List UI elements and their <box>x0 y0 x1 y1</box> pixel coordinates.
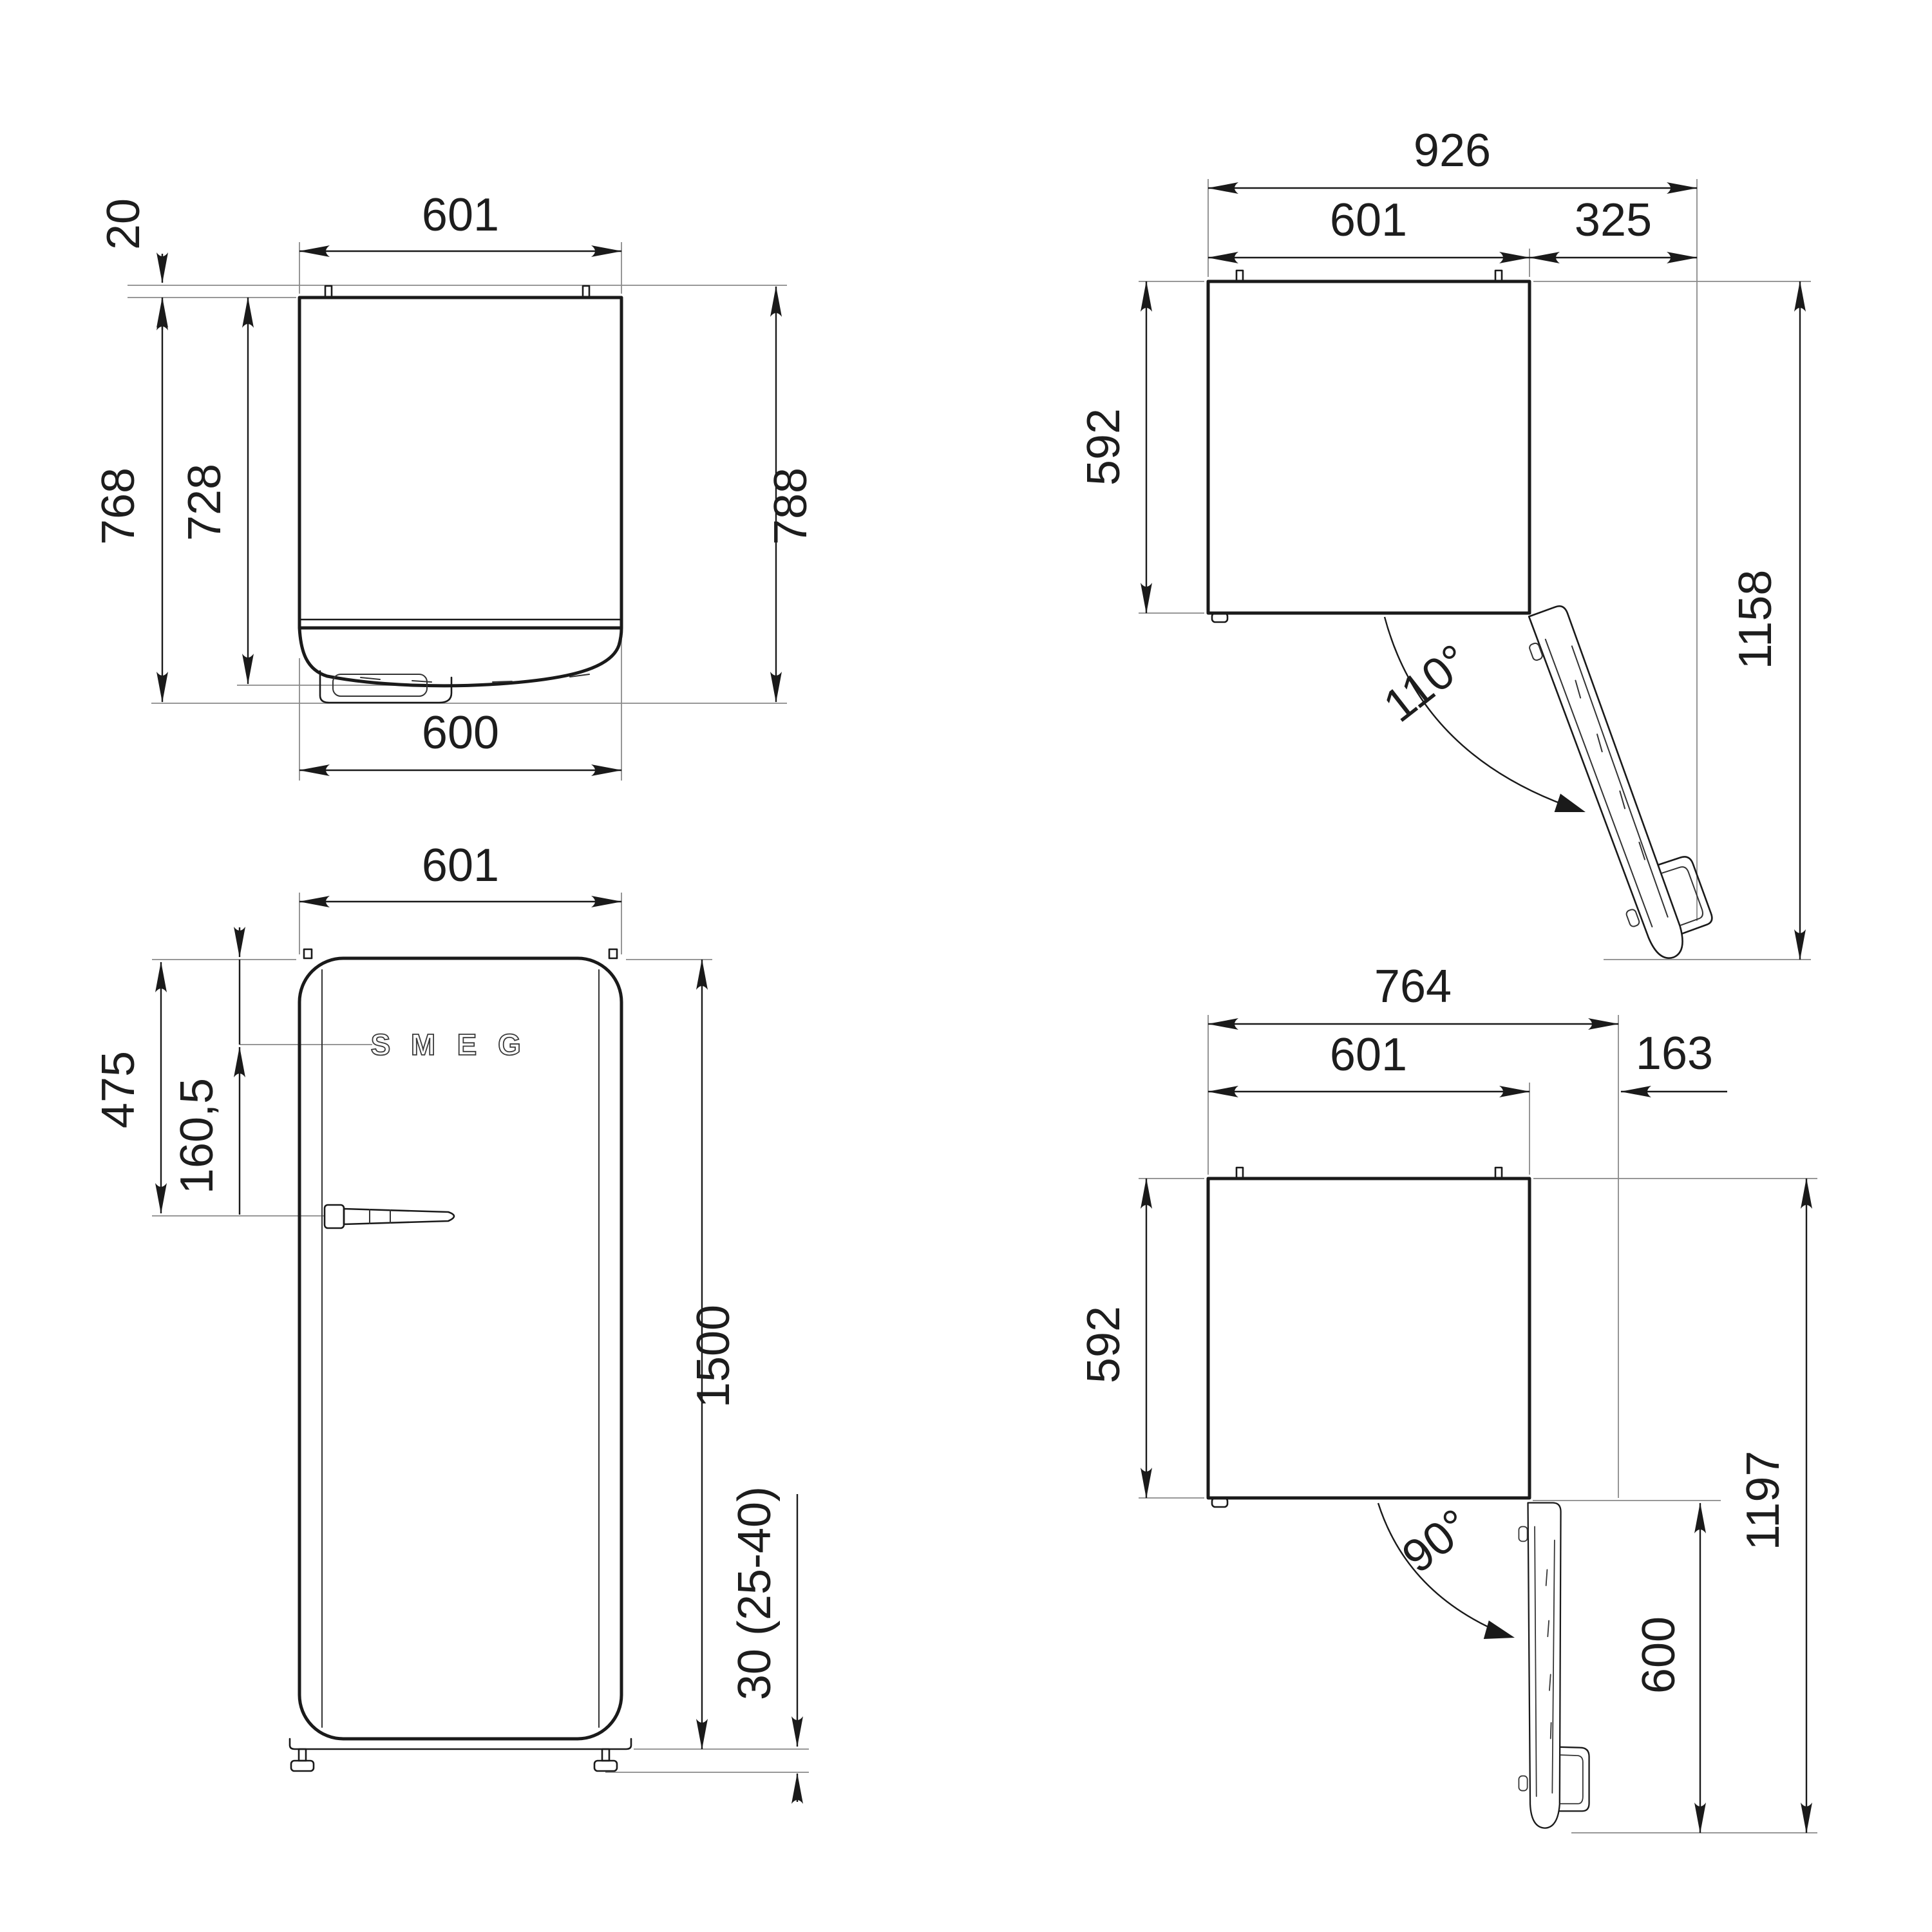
rear-spacer-pin-right <box>1495 1168 1502 1179</box>
dim-label-door-projection: 163 <box>1636 1028 1713 1079</box>
label-door-angle-110: 110° <box>1374 634 1479 732</box>
logo-letter-e: E <box>457 1028 478 1061</box>
dim-label-overall-depth: 1158 <box>1730 570 1781 670</box>
dim-label-overall-width: 764 <box>1374 961 1452 1012</box>
extension-lines <box>1139 179 1811 960</box>
dim-label-body-width: 601 <box>1330 194 1407 246</box>
dim-label-depth-overall: 788 <box>765 468 817 545</box>
dim-label-height: 1500 <box>688 1305 739 1408</box>
dim-label-top-to-logo: 160,5 <box>171 1078 223 1194</box>
cabinet-body-open-110 <box>1208 281 1529 613</box>
dimension-lines <box>1146 188 1800 960</box>
door-handle-front <box>325 1205 454 1228</box>
top-hinge-cap-left <box>304 949 312 958</box>
dim-label-width: 601 <box>422 840 499 891</box>
rear-spacer-pin-left <box>1236 270 1243 281</box>
rear-spacer-pin-left <box>1236 1168 1243 1179</box>
arc-arrowhead <box>1555 793 1586 812</box>
logo-letter-g: G <box>498 1028 522 1061</box>
dimension-drawing: 601 20 768 728 788 600 926 601 <box>0 0 1932 1932</box>
door-open-90 <box>1519 1503 1589 1828</box>
rear-spacer-pin-right <box>1495 270 1502 281</box>
rear-spacer-pin-left <box>325 286 332 298</box>
cabinet-body-open-90 <box>1208 1179 1529 1498</box>
view-top-open-110: 926 601 325 592 1158 110° <box>1078 125 1811 967</box>
brand-logo: S M E G <box>371 1028 522 1061</box>
extension-lines <box>1139 1015 1817 1833</box>
dim-label-depth-with-handle: 768 <box>93 468 144 545</box>
dim-label-width-top: 601 <box>422 189 499 241</box>
logo-letter-m: M <box>411 1028 437 1061</box>
dim-label-overall-width: 926 <box>1414 125 1491 176</box>
door-curved-front <box>299 628 621 686</box>
label-door-angle-90: 90° <box>1393 1499 1480 1583</box>
adjustable-feet <box>291 1749 617 1771</box>
dim-label-width-bottom: 600 <box>422 707 499 759</box>
dim-label-overall-depth: 1197 <box>1738 1451 1789 1551</box>
dim-label-body-depth: 592 <box>1078 1306 1130 1383</box>
dim-label-depth-body: 728 <box>179 464 231 541</box>
fridge-front-outline <box>299 958 621 1739</box>
dim-label-door-projection: 325 <box>1575 194 1652 246</box>
dim-label-top-to-handle: 475 <box>93 1051 144 1128</box>
dim-label-body-width: 601 <box>1330 1029 1407 1081</box>
view-top-open-90: 764 601 163 592 1197 600 90° <box>1078 961 1817 1833</box>
dim-label-door-swing-depth: 600 <box>1633 1616 1685 1694</box>
dim-label-feet-height: 30 (25-40) <box>729 1486 781 1700</box>
dim-label-body-depth: 592 <box>1078 408 1130 486</box>
view-top-closed: 601 20 768 728 788 600 <box>93 189 817 781</box>
top-hinge-cap-right <box>609 949 617 958</box>
view-front: S M E G 601 475 160,5 1500 30 (25-40) <box>93 840 809 1802</box>
dimension-lines <box>162 251 776 770</box>
dimension-lines <box>1146 1024 1806 1833</box>
logo-letter-s: S <box>371 1028 392 1061</box>
cabinet-body-top-closed <box>299 298 621 628</box>
dim-label-rear-spacer: 20 <box>98 198 149 250</box>
door-side-curvature-lines <box>322 970 599 1727</box>
rear-spacer-pin-right <box>583 286 589 298</box>
door-open-110 <box>1519 592 1721 967</box>
arc-arrowhead <box>1484 1620 1515 1639</box>
